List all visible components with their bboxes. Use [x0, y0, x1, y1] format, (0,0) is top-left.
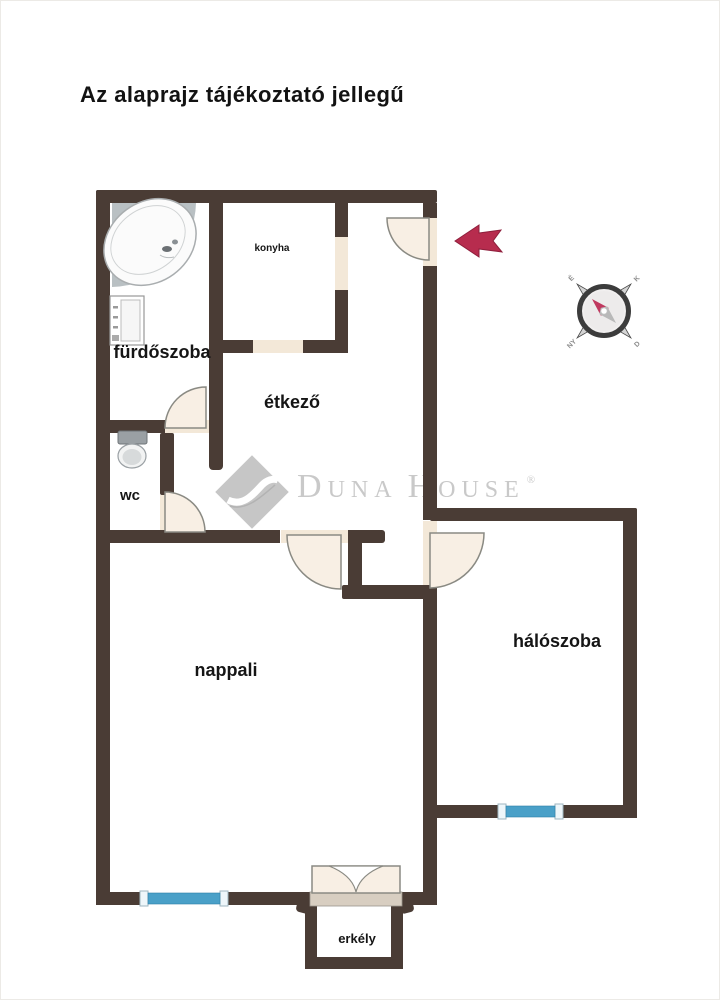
wc-door-arc	[165, 492, 205, 532]
compass-label-w: NY	[566, 338, 578, 350]
wall-bedroom-right	[623, 508, 637, 818]
washbasin-icon	[110, 296, 144, 345]
window-living-room	[148, 893, 220, 904]
room-label-living: nappali	[194, 660, 257, 680]
wall-kitchen-bottom-b	[303, 340, 348, 353]
room-label-balcony: erkély	[338, 931, 376, 946]
room-label-dining: étkező	[264, 392, 320, 412]
room-label-bedroom: hálószoba	[513, 631, 602, 651]
wall-right-mid	[423, 266, 437, 520]
kitchen-hall-opening	[335, 237, 348, 290]
room-label-bathroom: fürdőszoba	[114, 342, 212, 362]
wall-bottom-a	[96, 892, 143, 905]
watermark-logo-icon	[215, 455, 289, 529]
walls	[96, 190, 637, 969]
wall-alcove-bottom	[342, 585, 437, 599]
wall-right-lower	[423, 588, 437, 892]
entrance-door-arc	[387, 218, 429, 260]
compass-label-e: K	[633, 275, 642, 284]
wall-wc-right	[160, 433, 174, 495]
bathroom-door-arc	[165, 387, 206, 428]
room-label-wc: wc	[119, 487, 140, 504]
wall-bedroom-bottom-b	[560, 805, 637, 818]
compass-label-s: D	[633, 340, 642, 349]
wall-balcony-right	[391, 905, 403, 969]
compass-label-n: É	[566, 273, 576, 283]
wall-left	[96, 190, 110, 905]
wall-bathroom-divider	[209, 196, 223, 470]
floorplan-drawing: É K D NY fürdőszoba konyha étkező wc nap…	[0, 0, 720, 1000]
balcony-threshold	[310, 892, 402, 906]
living-door-arc	[287, 535, 341, 589]
room-label-kitchen: konyha	[254, 243, 289, 254]
wall-bedroom-top	[430, 508, 637, 521]
window-cap	[220, 891, 228, 906]
compass-icon: É K D NY	[532, 241, 674, 383]
bedroom-door-arc	[430, 533, 484, 588]
entrance-arrow-icon	[455, 225, 502, 257]
window-cap	[555, 804, 563, 819]
window-cap	[498, 804, 506, 819]
window-bedroom	[506, 806, 555, 817]
kitchen-dining-opening	[253, 340, 303, 353]
wall-right-above-entrance	[423, 203, 437, 218]
wall-balcony-bottom	[305, 957, 403, 969]
wall-kitchen-right-a	[335, 196, 348, 237]
wall-alcove-left	[348, 530, 362, 587]
window-cap	[140, 891, 148, 906]
toilet-icon	[118, 431, 147, 468]
wall-bedroom-bottom-a	[423, 805, 505, 818]
floorplan-page: Az alaprajz tájékoztató jellegű D UNA H …	[0, 0, 720, 1000]
wall-kitchen-bottom-a	[209, 340, 253, 353]
